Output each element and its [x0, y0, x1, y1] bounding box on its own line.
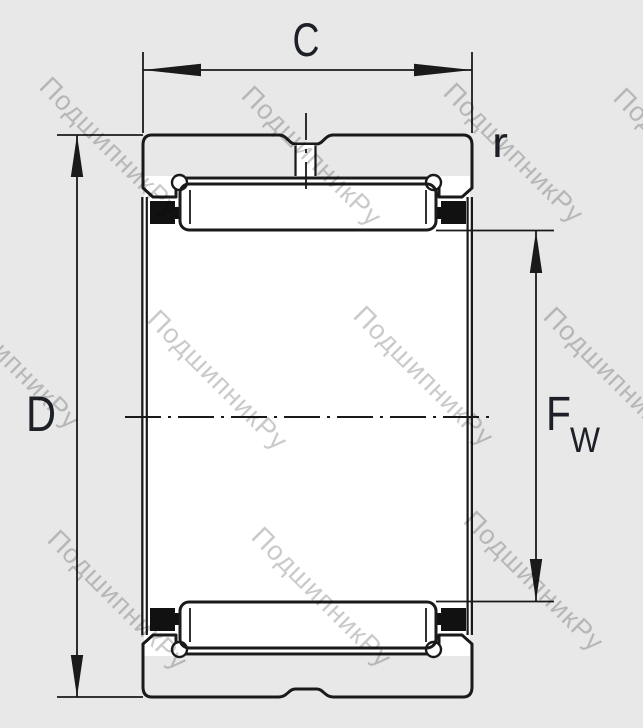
seal-bottom-right: [441, 608, 466, 631]
seal-top-right: [441, 201, 466, 224]
bearing-drawing-canvas: C D r F W ПодшипникРу ПодшипникРу Подшип…: [0, 0, 643, 728]
dim-label-C: C: [293, 13, 320, 66]
dim-label-FW-subscript: W: [570, 421, 600, 460]
dim-label-FW-main: F: [546, 388, 571, 441]
relief-circle-top-left: [172, 175, 187, 190]
